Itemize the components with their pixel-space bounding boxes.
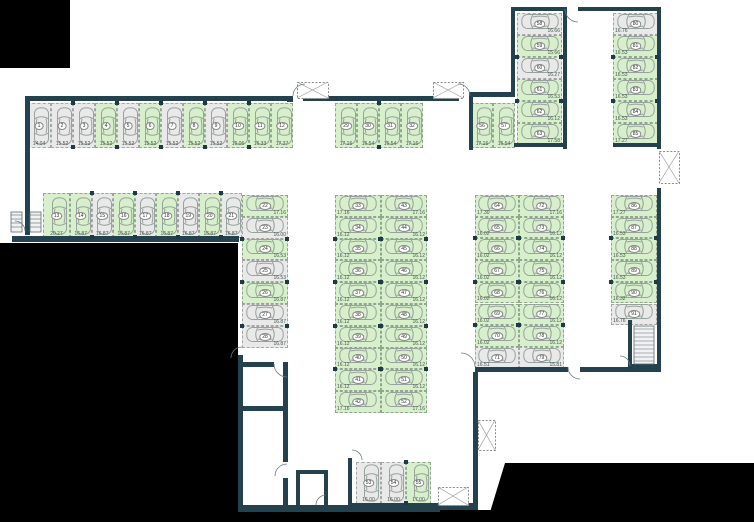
parking-stall-74[interactable]: 7416.12: [519, 238, 564, 260]
parking-stall-7: 715.52: [161, 103, 183, 148]
stall-number-badge: 1: [35, 122, 44, 130]
parking-stall-41[interactable]: 4116.12: [335, 369, 381, 391]
parking-stall-20[interactable]: 2016.87: [199, 193, 221, 238]
stall-number-badge: 35: [352, 245, 364, 253]
pillar: [176, 235, 180, 239]
stall-area-label: 16.12: [337, 341, 350, 347]
wall-segment: [470, 92, 515, 97]
parking-stall-67[interactable]: 6716.02: [475, 260, 519, 282]
stall-number-badge: 22: [259, 202, 271, 210]
parking-stall-80: 8016.76: [613, 13, 658, 35]
pillar: [90, 235, 94, 239]
stall-number-badge: 78: [536, 332, 548, 340]
parking-stall-76[interactable]: 7616.12: [519, 282, 564, 304]
stall-area-label: 17.16: [472, 141, 492, 147]
pillar: [219, 191, 223, 195]
parking-stall-2: 215.52: [51, 103, 73, 148]
stall-number-badge: 63: [534, 130, 546, 138]
pillar: [379, 280, 383, 284]
parking-stall-18[interactable]: 1816.87: [156, 193, 178, 238]
parking-stall-34[interactable]: 3416.12: [335, 217, 381, 239]
stall-number-badge: 55: [413, 479, 425, 487]
wall-segment: [296, 470, 326, 474]
stall-number-badge: 74: [536, 245, 548, 253]
stall-area-label: 16.27: [547, 72, 560, 78]
stairs-icon: [11, 212, 22, 232]
parking-stall-4[interactable]: 415.52: [95, 103, 117, 148]
pillar: [517, 323, 521, 327]
parking-stall-44[interactable]: 4416.12: [381, 217, 427, 239]
stall-area-label: 16.12: [337, 362, 350, 368]
stall-number-badge: 2: [58, 122, 67, 130]
parking-stall-42[interactable]: 4217.16: [335, 391, 381, 413]
stall-area-label: 16.12: [412, 253, 425, 259]
stall-number-badge: 19: [182, 212, 194, 220]
stairs-icon: [30, 212, 41, 232]
pillar: [515, 55, 519, 59]
pillar: [71, 145, 75, 149]
pillar: [515, 99, 519, 103]
stall-number-badge: 84: [630, 108, 642, 116]
parking-stall-77[interactable]: 7716.12: [519, 304, 564, 326]
stall-number-badge: 56: [476, 122, 488, 130]
parking-stall-30[interactable]: 3016.54: [357, 103, 379, 148]
pillar: [285, 324, 289, 328]
stall-number-badge: 88: [628, 245, 640, 253]
parking-stall-16[interactable]: 1616.87: [113, 193, 135, 238]
void-region: [0, 243, 238, 522]
pillar: [424, 280, 428, 284]
stall-number-badge: 48: [398, 311, 410, 319]
stall-number-badge: 52: [398, 398, 410, 406]
stall-area-label: 17.37: [272, 141, 292, 147]
stall-area-label: 15.52: [184, 141, 204, 147]
parking-stall-51[interactable]: 5116.12: [381, 369, 427, 391]
parking-stall-81[interactable]: 8116.53: [613, 35, 658, 57]
parking-stall-22[interactable]: 2217.16: [242, 195, 288, 217]
parking-stall-47[interactable]: 4716.12: [381, 282, 427, 304]
stall-area-label: 16.54: [494, 141, 514, 147]
stall-area-label: 16.87: [273, 297, 286, 303]
parking-stall-60: 6016.27: [517, 57, 562, 79]
stall-number-badge: 34: [352, 224, 364, 232]
stall-number-badge: 42: [352, 398, 364, 406]
wall-segment: [563, 7, 567, 149]
parking-stall-25: 2516.53: [242, 260, 288, 282]
stall-number-badge: 14: [75, 212, 87, 220]
stall-area-label: 17.16: [549, 210, 562, 216]
stall-number-badge: 40: [352, 354, 364, 362]
parking-stall-90[interactable]: 9016.32: [611, 282, 657, 304]
stall-number-badge: 61: [534, 86, 546, 94]
parking-stall-3: 315.52: [73, 103, 95, 148]
pillar: [203, 101, 207, 105]
stall-number-badge: 69: [491, 310, 503, 318]
stall-number-badge: 45: [398, 245, 410, 253]
parking-stall-72[interactable]: 7217.16: [519, 195, 564, 217]
parking-stall-79: 7915.81: [519, 347, 564, 369]
parking-stall-36[interactable]: 3616.12: [335, 260, 381, 282]
stall-number-badge: 23: [259, 224, 271, 232]
parking-stall-1: 114.04: [27, 103, 51, 148]
parking-stall-9: 915.52: [205, 103, 227, 148]
stall-area-label: 16.12: [337, 384, 350, 390]
stall-area-label: 16.53: [613, 231, 626, 237]
parking-stall-29[interactable]: 2917.16: [335, 103, 357, 148]
stall-area-label: 16.66: [547, 28, 560, 34]
stall-number-badge: 90: [628, 289, 640, 297]
parking-stall-32[interactable]: 3217.16: [401, 103, 423, 148]
pillar: [424, 367, 428, 371]
stall-area-label: 16.33: [250, 141, 270, 147]
door-arc-icon: [461, 353, 475, 367]
stall-number-badge: 79: [536, 354, 548, 362]
stall-area-label: 17.16: [402, 141, 422, 147]
parking-stall-71: 7116.51: [475, 347, 519, 369]
wall-segment: [283, 362, 288, 462]
wall-segment: [514, 143, 565, 147]
stall-number-badge: 50: [398, 354, 410, 362]
parking-stall-11[interactable]: 1116.33: [249, 103, 271, 148]
wall-segment: [242, 406, 285, 411]
stall-area-label: 16.02: [477, 231, 490, 237]
stall-area-label: 16.12: [337, 253, 350, 259]
parking-stall-59[interactable]: 5915.66: [517, 35, 562, 57]
stall-number-badge: 7: [168, 122, 177, 130]
wall-segment: [242, 362, 274, 367]
parking-stall-56[interactable]: 5617.16: [471, 103, 493, 148]
wall-segment: [473, 372, 478, 505]
stall-number-badge: 20: [204, 212, 216, 220]
door-arc-icon: [293, 84, 305, 96]
pillar: [559, 99, 563, 103]
parking-stall-54: 5416.00: [381, 462, 406, 504]
pillar: [473, 280, 477, 284]
pillar: [240, 280, 244, 284]
parking-stall-75[interactable]: 7516.12: [519, 260, 564, 282]
stall-number-badge: 41: [352, 376, 364, 384]
stall-number-badge: 17: [139, 212, 151, 220]
pillar: [247, 145, 251, 149]
parking-stall-61[interactable]: 6116.53: [517, 79, 562, 101]
wall-segment: [303, 96, 459, 101]
stall-area-label: 17.16: [273, 210, 286, 216]
stall-area-label: 17.27: [613, 210, 626, 216]
wall-segment: [287, 96, 293, 102]
stall-number-badge: 68: [491, 289, 503, 297]
stall-area-label: 16.53: [613, 253, 626, 259]
stall-area-label: 17.16: [412, 406, 425, 412]
pillar: [611, 55, 615, 59]
parking-stall-55[interactable]: 5517.00: [406, 462, 431, 504]
stall-area-label: 16.02: [477, 318, 490, 324]
pillar: [240, 324, 244, 328]
stall-number-badge: 57: [498, 122, 510, 130]
stall-number-badge: 65: [491, 224, 503, 232]
stall-number-badge: 66: [491, 245, 503, 253]
pillar: [655, 99, 659, 103]
parking-stall-31[interactable]: 3116.54: [379, 103, 401, 148]
stall-number-badge: 51: [398, 376, 410, 384]
parking-stall-66[interactable]: 6616.02: [475, 238, 519, 260]
stall-area-label: 15.52: [162, 141, 182, 147]
parking-stall-21: 2116.87: [221, 193, 243, 238]
stall-number-badge: 83: [630, 86, 642, 94]
pillar: [333, 324, 337, 328]
pillar: [159, 101, 163, 105]
stall-number-badge: 58: [534, 20, 546, 28]
parking-stall-35[interactable]: 3516.12: [335, 239, 381, 261]
stall-area-label: 16.32: [613, 296, 626, 302]
pillar: [424, 237, 428, 241]
stall-number-badge: 67: [491, 267, 503, 275]
stall-number-badge: 80: [630, 20, 642, 28]
stall-number-badge: 54: [388, 479, 400, 487]
wall-segment: [238, 355, 243, 512]
parking-stall-24[interactable]: 2416.53: [242, 239, 288, 261]
pillar: [517, 236, 521, 240]
parking-stall-63[interactable]: 6317.58: [517, 123, 562, 145]
stall-number-badge: 70: [491, 332, 503, 340]
parking-stall-37[interactable]: 3716.12: [335, 282, 381, 304]
stall-area-label: 16.53: [613, 275, 626, 281]
parking-stall-5: 515.52: [117, 103, 139, 148]
parking-stall-68[interactable]: 6816.02: [475, 282, 519, 304]
stall-area-label: 17.30: [477, 210, 490, 216]
parking-stall-45[interactable]: 4516.12: [381, 239, 427, 261]
parking-stall-6[interactable]: 615.52: [139, 103, 161, 148]
parking-stall-14[interactable]: 1416.87: [70, 193, 92, 238]
stall-number-badge: 30: [362, 122, 374, 130]
stall-number-badge: 18: [161, 212, 173, 220]
pillar: [159, 145, 163, 149]
stall-area-label: 15.52: [118, 141, 138, 147]
stall-number-badge: 28: [259, 333, 271, 341]
stall-area-label: 15.52: [96, 141, 116, 147]
stall-area-label: 16.76: [613, 318, 626, 324]
wall-segment: [613, 143, 661, 147]
parking-stall-39[interactable]: 3916.12: [335, 326, 381, 348]
stall-number-badge: 89: [628, 267, 640, 275]
wall-segment: [475, 367, 568, 372]
parking-stall-43[interactable]: 4317.16: [381, 195, 427, 217]
parking-stall-33[interactable]: 3317.16: [335, 195, 381, 217]
pillar: [654, 236, 658, 240]
stall-number-badge: 33: [352, 202, 364, 210]
parking-stall-57[interactable]: 5716.54: [493, 103, 515, 148]
parking-stall-13[interactable]: 1320.27: [43, 193, 70, 238]
parking-stall-86[interactable]: 8617.27: [611, 195, 657, 217]
stall-number-badge: 13: [51, 212, 63, 220]
stall-number-badge: 9: [212, 122, 221, 130]
stall-number-badge: 49: [398, 333, 410, 341]
stall-area-label: 17.16: [336, 141, 356, 147]
wall-segment: [437, 503, 478, 510]
pillar: [379, 324, 383, 328]
pillar: [561, 323, 565, 327]
stall-number-badge: 36: [352, 267, 364, 275]
stall-number-badge: 26: [259, 289, 271, 297]
stall-number-badge: 87: [628, 224, 640, 232]
parking-stall-65[interactable]: 6516.02: [475, 217, 519, 239]
stall-number-badge: 24: [259, 245, 271, 253]
void-region: [0, 0, 70, 68]
elevator-shaft-icon: [478, 420, 496, 451]
parking-stall-89[interactable]: 8916.53: [611, 260, 657, 282]
stall-number-badge: 15: [96, 212, 108, 220]
stall-number-badge: 75: [536, 267, 548, 275]
parking-stall-49[interactable]: 4916.12: [381, 326, 427, 348]
door-arc-icon: [275, 464, 287, 476]
wall-segment: [628, 320, 632, 368]
pillar: [285, 280, 289, 284]
stall-number-badge: 86: [628, 202, 640, 210]
stall-number-badge: 44: [398, 224, 410, 232]
pillar: [424, 324, 428, 328]
parking-stall-52[interactable]: 5217.16: [381, 391, 427, 413]
pillar: [377, 101, 381, 105]
stall-number-badge: 76: [536, 289, 548, 297]
pillar: [561, 280, 565, 284]
parking-stall-40[interactable]: 4016.12: [335, 348, 381, 370]
stall-number-badge: 62: [534, 108, 546, 116]
pillar: [90, 191, 94, 195]
stall-number-badge: 5: [124, 122, 133, 130]
wall-segment: [238, 505, 440, 512]
stairs-icon: [634, 326, 654, 364]
stall-area-label: 15.52: [140, 141, 160, 147]
stall-area-label: 16.12: [549, 253, 562, 259]
parking-stall-10[interactable]: 1016.06: [227, 103, 249, 148]
stall-number-badge: 16: [118, 212, 130, 220]
stall-number-badge: 8: [190, 122, 199, 130]
pillar: [115, 145, 119, 149]
stall-number-badge: 43: [398, 202, 410, 210]
pillar: [219, 235, 223, 239]
parking-stall-23: 2316.00: [242, 217, 288, 239]
parking-stall-17: 1716.87: [135, 193, 157, 238]
stall-area-label: 16.06: [228, 141, 248, 147]
parking-stall-38[interactable]: 3816.12: [335, 304, 381, 326]
parking-stall-53: 5316.00: [356, 462, 381, 504]
pillar: [609, 280, 613, 284]
parking-stall-84[interactable]: 8416.53: [613, 101, 658, 123]
pillar: [609, 236, 613, 240]
parking-stall-8[interactable]: 815.52: [183, 103, 205, 148]
parking-stall-64[interactable]: 6417.30: [475, 195, 519, 217]
parking-stall-87[interactable]: 8716.53: [611, 217, 657, 239]
stall-number-badge: 59: [534, 42, 546, 50]
stall-number-badge: 4: [102, 122, 111, 130]
parking-stall-62[interactable]: 6216.12: [517, 101, 562, 123]
pillar: [379, 237, 383, 241]
stall-area-label: 16.12: [549, 340, 562, 346]
parking-stall-73[interactable]: 7316.12: [519, 217, 564, 239]
stall-number-badge: 77: [536, 310, 548, 318]
pillar: [404, 501, 408, 505]
wall-segment: [469, 92, 473, 150]
wall-segment: [657, 7, 661, 149]
parking-stall-83[interactable]: 8316.53: [613, 79, 658, 101]
stall-area-label: 16.54: [380, 141, 400, 147]
pillar: [654, 280, 658, 284]
pillar: [473, 323, 477, 327]
parking-stall-78[interactable]: 7816.12: [519, 325, 564, 347]
pillar: [133, 235, 137, 239]
stall-area-label: 16.12: [412, 297, 425, 303]
stall-area-label: 16.12: [547, 116, 560, 122]
parking-stall-28: 2816.87: [242, 326, 288, 348]
pillar: [655, 55, 659, 59]
stall-area-label: 16.12: [337, 319, 350, 325]
door-arc-icon: [568, 367, 580, 379]
stall-number-badge: 29: [340, 122, 352, 130]
wall-segment: [324, 470, 328, 507]
parking-stall-82[interactable]: 8216.53: [613, 57, 658, 79]
stall-area-label: 16.53: [615, 72, 628, 78]
pillar: [517, 280, 521, 284]
stall-number-badge: 85: [630, 130, 642, 138]
stall-number-badge: 64: [491, 202, 503, 210]
wall-segment: [578, 7, 660, 11]
stall-area-label: 17.16: [337, 210, 350, 216]
parking-stall-46[interactable]: 4616.12: [381, 260, 427, 282]
parking-stall-70[interactable]: 7016.02: [475, 325, 519, 347]
stall-number-badge: 3: [80, 122, 89, 130]
pillar: [611, 99, 615, 103]
parking-stall-88[interactable]: 8816.53: [611, 238, 657, 260]
stall-number-badge: 38: [352, 311, 364, 319]
stall-area-label: 17.16: [412, 210, 425, 216]
stall-area-label: 16.76: [615, 28, 628, 34]
stall-area-label: 17.16: [337, 406, 350, 412]
pillar: [333, 237, 337, 241]
pillar: [333, 367, 337, 371]
stall-number-badge: 81: [630, 42, 642, 50]
parking-stall-12[interactable]: 1217.37: [271, 103, 293, 148]
stall-area-label: 16.53: [273, 253, 286, 259]
parking-stall-48[interactable]: 4816.12: [381, 304, 427, 326]
pillar: [379, 367, 383, 371]
parking-stall-26[interactable]: 2616.87: [242, 282, 288, 304]
stall-number-badge: 71: [491, 354, 503, 362]
stall-number-badge: 46: [398, 267, 410, 275]
stall-number-badge: 73: [536, 224, 548, 232]
pillar: [240, 237, 244, 241]
parking-stall-85[interactable]: 8517.27: [613, 123, 658, 145]
parking-stall-58: 5816.66: [517, 13, 562, 35]
parking-stall-69[interactable]: 6916.02: [475, 304, 519, 326]
stall-area-label: 16.87: [273, 341, 286, 347]
stall-number-badge: 37: [352, 289, 364, 297]
stall-area-label: 15.52: [74, 141, 94, 147]
pillar: [133, 191, 137, 195]
parking-stall-50[interactable]: 5016.12: [381, 348, 427, 370]
stall-area-label: 14.04: [28, 141, 50, 147]
void-region: [487, 463, 754, 522]
stall-area-label: 16.53: [615, 50, 628, 56]
stall-number-badge: 27: [259, 311, 271, 319]
pillar: [333, 280, 337, 284]
parking-stall-91: 9116.76: [611, 304, 657, 326]
door-arc-icon: [352, 450, 362, 460]
stall-number-badge: 72: [536, 202, 548, 210]
stall-area-label: 16.02: [477, 340, 490, 346]
elevator-shaft-icon: [659, 151, 680, 184]
pillar: [473, 236, 477, 240]
stall-number-badge: 31: [384, 122, 396, 130]
stall-area-label: 15.52: [52, 141, 72, 147]
